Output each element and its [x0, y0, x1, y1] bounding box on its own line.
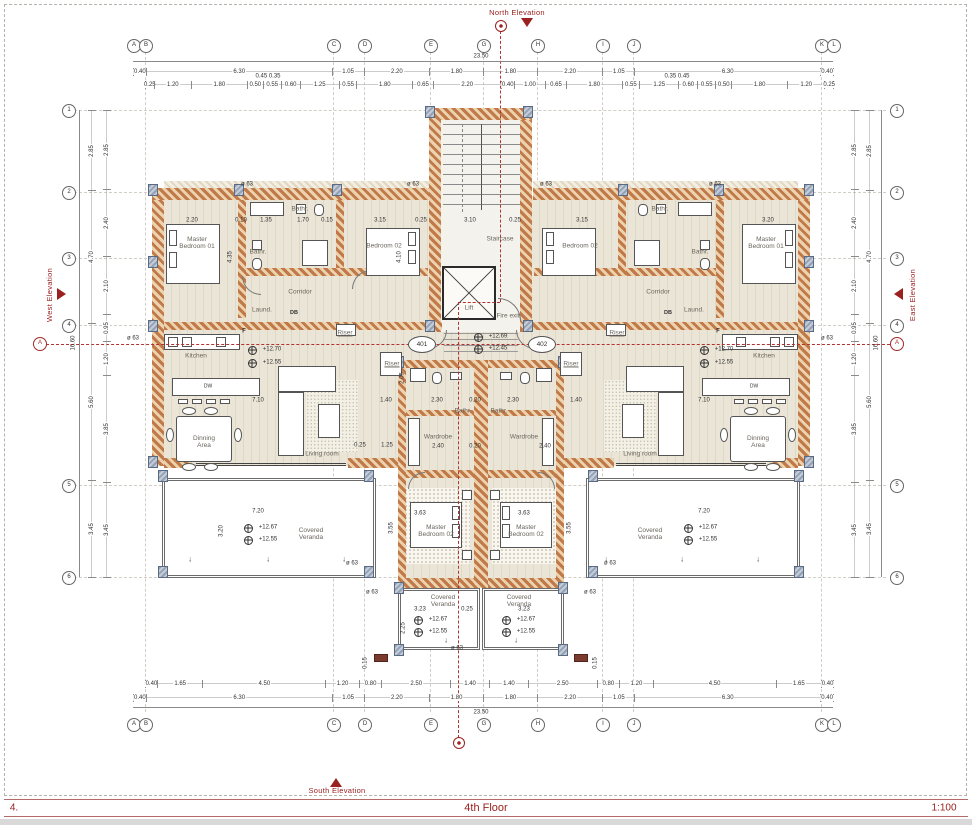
- dimension-segment: 4.70: [88, 190, 96, 322]
- dimension-segment: 1.05: [332, 68, 364, 76]
- dimension-label: 1.25: [381, 443, 393, 450]
- pillow: [785, 252, 793, 268]
- bathtub: [678, 202, 712, 216]
- column: [794, 470, 804, 482]
- dimension-label: 0.25: [509, 218, 521, 225]
- dimension-segment: 0.25: [145, 81, 154, 89]
- wall: [152, 200, 164, 466]
- level-marker-icon: [248, 346, 257, 355]
- column: [804, 456, 814, 468]
- column: [618, 184, 628, 196]
- dimension-segment: 1.05: [602, 68, 634, 76]
- dimension-segment: 2.85: [88, 110, 96, 190]
- dimension-segment: 3.85: [851, 375, 859, 481]
- grid-line: [821, 52, 822, 712]
- dimension-label: 4.35: [228, 251, 235, 263]
- dimension-segment: 1.05: [602, 694, 634, 702]
- kitchen-appliance: [770, 337, 780, 347]
- column: [158, 470, 168, 482]
- dimension-label: 3.10: [464, 218, 476, 225]
- chair: [766, 463, 780, 471]
- section-line-jog: [458, 302, 500, 303]
- column: [425, 106, 435, 118]
- dimension-segment: 0.40: [820, 694, 833, 702]
- f-label: F: [716, 329, 720, 336]
- wall: [398, 360, 406, 588]
- stair-center-line: [481, 124, 482, 210]
- drain-arrow-icon: ↓: [680, 556, 684, 565]
- stool: [734, 399, 744, 404]
- db-label: DB: [290, 310, 298, 316]
- level-value: +12.55: [517, 629, 536, 636]
- level-marker-icon: [684, 524, 693, 533]
- column: [394, 582, 404, 594]
- drain-label: ø 63: [366, 590, 378, 597]
- column: [794, 566, 804, 578]
- wall: [398, 578, 474, 588]
- column: [804, 320, 814, 332]
- room-label-bath-center-right: Bathr.: [491, 407, 508, 414]
- kitchen-appliance: [784, 337, 794, 347]
- page-title: 4th Floor: [464, 802, 507, 814]
- riser-label: Riser: [337, 329, 352, 336]
- grid-bubble-bottom: B: [139, 718, 153, 732]
- dimension-label: 2.40: [432, 444, 444, 451]
- west-arrow-icon: [57, 288, 66, 300]
- dimension-segment: 0.55: [697, 81, 715, 89]
- dimension-label: 1.70: [297, 218, 309, 225]
- bottom-dimension-row-major: 0.406.301.052.201.801.802.201.056.300.40: [133, 694, 834, 702]
- dimension-segment: 1.80: [429, 68, 483, 76]
- dimension-label: 0.45 0.35: [255, 74, 280, 81]
- column: [804, 184, 814, 196]
- stair-up-line: [462, 124, 463, 212]
- level-value: +12.69: [489, 334, 508, 341]
- grid-bubble-bottom: L: [827, 718, 841, 732]
- room-label-veranda-left: Covered Veranda: [290, 527, 332, 541]
- level-marker-icon: [414, 628, 423, 637]
- dimension-segment: 0.40: [133, 694, 146, 702]
- dimension-segment: 0.40: [133, 68, 146, 76]
- dimension-label: 0.15: [321, 218, 333, 225]
- grid-line: [145, 52, 146, 712]
- room-label-corridor-left: Corridor: [288, 288, 311, 295]
- chair: [744, 407, 758, 415]
- pillow: [546, 250, 554, 264]
- dimension-segment: 3.45: [866, 480, 874, 577]
- pillow: [169, 252, 177, 268]
- room-label-fire-exit: Fire exit: [496, 312, 519, 319]
- dimension-segment: 1.20: [325, 680, 358, 688]
- grid-bubble-top: D: [358, 39, 372, 53]
- dimension-segment: 1.80: [566, 81, 622, 89]
- column: [148, 184, 158, 196]
- dimension-segment: 1.65: [776, 680, 822, 688]
- room-label-master-bedroom-02-right: Master Bedroom 02: [503, 524, 549, 538]
- dimension-segment: 2.20: [364, 694, 430, 702]
- drain-arrow-icon: ↓: [756, 556, 760, 565]
- right-dimension-col-inner: 2.852.402.100.951.203.853.45: [851, 110, 859, 578]
- dimension-segment: 5.60: [88, 323, 96, 480]
- level-marker-icon: [244, 524, 253, 533]
- dimension-segment: 0.80: [359, 680, 382, 688]
- nightstand: [490, 550, 500, 560]
- column: [588, 566, 598, 578]
- wall: [798, 200, 810, 466]
- overall-dim-line-bottom: [133, 707, 833, 708]
- dimension-segment: 1.20: [103, 341, 111, 375]
- drain-arrow-icon: ↓: [188, 556, 192, 565]
- grid-bubble-bottom: G: [477, 718, 491, 732]
- drain-label: ø 63: [821, 336, 833, 343]
- west-elevation-label: West Elevation: [46, 268, 54, 322]
- dimension-segment: 2.50: [528, 680, 597, 688]
- dimension-segment: 1.20: [154, 81, 191, 89]
- section-marker-north: [495, 20, 507, 32]
- dimension-label: 2.30: [431, 398, 443, 405]
- north-arrow-icon: [521, 18, 533, 27]
- dimension-segment: 6.30: [146, 68, 332, 76]
- drain-arrow-icon: ↓: [514, 637, 518, 646]
- shower: [634, 240, 660, 266]
- drain-label: ø 63: [451, 646, 463, 653]
- shower: [410, 368, 426, 382]
- drain-label: ø 63: [540, 182, 552, 189]
- dimension-segment: 0.55: [339, 81, 357, 89]
- grid-bubble-bottom: E: [424, 718, 438, 732]
- shaft-block: [374, 654, 388, 662]
- grid-bubble-right: 1: [890, 104, 904, 118]
- riser-label: Riser: [609, 329, 624, 336]
- dimension-label: 4.10: [397, 251, 404, 263]
- wall: [488, 360, 556, 368]
- east-arrow-icon: [894, 288, 903, 300]
- sofa: [278, 392, 304, 456]
- dimension-segment: 2.20: [433, 81, 501, 89]
- nightstand: [490, 490, 500, 500]
- dimension-label: 0.10: [235, 218, 247, 225]
- level-value: +12.67: [429, 617, 448, 624]
- grid-bubble-bottom: J: [627, 718, 641, 732]
- dimension-segment: 3.45: [851, 482, 859, 577]
- pillow: [408, 232, 416, 246]
- level-marker-icon: [700, 359, 709, 368]
- bathtub: [250, 202, 284, 216]
- room-label-staircase: Staircase: [486, 235, 513, 242]
- sink: [500, 372, 512, 380]
- dimension-label: 0.25: [461, 607, 473, 614]
- room-label-master-bedroom-01-right: Master Bedroom 01: [744, 236, 788, 250]
- grid-bubble-bottom: H: [531, 718, 545, 732]
- pillow: [502, 506, 510, 520]
- drain-label: ø 63: [127, 336, 139, 343]
- dimension-label: 2.25: [401, 622, 408, 634]
- overall-height-left: 16.60: [71, 335, 78, 350]
- sink: [450, 372, 462, 380]
- level-value: +12.55: [715, 360, 734, 367]
- level-value: +12.67: [699, 525, 718, 532]
- shaft-block: [574, 654, 588, 662]
- level-value: +12.55: [429, 629, 448, 636]
- dimension-segment: 0.80: [597, 680, 620, 688]
- column: [804, 256, 814, 268]
- room-label-kitchen-left: Kitchen: [185, 352, 207, 359]
- sofa: [658, 392, 684, 456]
- column: [364, 470, 374, 482]
- grid-bubble-right: 4: [890, 319, 904, 333]
- dimension-label: 7.20: [698, 509, 710, 516]
- wall: [164, 322, 442, 330]
- titleblock-rule: [4, 799, 968, 800]
- dimension-label: 3.20: [219, 525, 226, 537]
- room-label-corridor-right: Corridor: [646, 288, 669, 295]
- column: [558, 582, 568, 594]
- top-dimension-row-detail: 0.251.201.800.500.550.601.250.551.800.65…: [145, 81, 834, 89]
- dimension-segment: 0.60: [281, 81, 300, 89]
- dimension-segment: 1.65: [157, 680, 203, 688]
- dimension-segment: 1.80: [731, 81, 787, 89]
- wall: [556, 360, 564, 588]
- grid-bubble-left: 6: [62, 571, 76, 585]
- wall: [429, 120, 441, 332]
- south-elevation-label: South Elevation: [308, 787, 365, 795]
- dimension-segment: 1.40: [489, 680, 528, 688]
- dimension-label: 2.20: [186, 218, 198, 225]
- room-label-laundry-left: Laund.: [252, 306, 272, 313]
- riser-label: Riser: [384, 360, 399, 367]
- dimension-label: 3.63: [414, 511, 426, 518]
- column: [364, 566, 374, 578]
- overall-height-right: 16.60: [874, 335, 881, 350]
- dimension-segment: 1.05: [332, 694, 364, 702]
- grid-bubble-top: I: [596, 39, 610, 53]
- dimension-label: 3.23: [518, 607, 530, 614]
- column: [158, 566, 168, 578]
- overall-dim-line-left: [79, 110, 80, 577]
- nightstand: [462, 490, 472, 500]
- grid-bubble-top: G: [477, 39, 491, 53]
- level-value: +12.67: [517, 617, 536, 624]
- dimension-label: 0.35 0.45: [664, 74, 689, 81]
- room-label-veranda-center-left: Covered Veranda: [422, 594, 464, 608]
- section-bubble-a-left: A: [33, 337, 47, 351]
- closet: [542, 418, 554, 466]
- overall-width-bottom: 23.50: [473, 710, 488, 717]
- drain-label: ø 63: [709, 182, 721, 189]
- chair: [204, 463, 218, 471]
- floor-plan-sheet: A A North Elevation South Elevation West…: [0, 0, 972, 825]
- room-label-bath: Bathr.: [292, 205, 309, 212]
- dimension-segment: 4.50: [653, 680, 776, 688]
- level-value: +12.55: [259, 537, 278, 544]
- dimension-segment: 1.80: [483, 694, 537, 702]
- room-label-dining-left: Dinning Area: [188, 435, 220, 449]
- toilet: [700, 258, 710, 270]
- stool: [762, 399, 772, 404]
- dimension-segment: 1.80: [356, 81, 412, 89]
- dimension-segment: 1.20: [619, 680, 652, 688]
- room-label-lift: Lift: [465, 304, 474, 311]
- dimension-segment: 2.20: [364, 68, 430, 76]
- dimension-segment: 3.85: [103, 375, 111, 481]
- level-value: +12.67: [259, 525, 278, 532]
- dimension-segment: 0.95: [851, 314, 859, 341]
- room-label-veranda-right: Covered Veranda: [629, 527, 671, 541]
- chair: [166, 428, 174, 442]
- grid-bubble-top: L: [827, 39, 841, 53]
- dimension-segment: 4.70: [866, 190, 874, 322]
- dimension-label: 0.15: [593, 657, 600, 669]
- dimension-segment: 2.40: [103, 189, 111, 256]
- column: [523, 106, 533, 118]
- dimension-segment: 0.65: [412, 81, 433, 89]
- grid-bubble-left: 3: [62, 252, 76, 266]
- dimension-label: 3.55: [567, 522, 574, 534]
- east-elevation-label: East Elevation: [909, 269, 917, 321]
- dimension-segment: 0.25: [824, 81, 833, 89]
- dimension-label: 7.10: [252, 398, 264, 405]
- dimension-segment: 0.40: [821, 680, 833, 688]
- shower: [536, 368, 552, 382]
- wall: [152, 188, 429, 200]
- dw-label: DW: [750, 384, 758, 390]
- drain-arrow-icon: ↓: [604, 556, 608, 565]
- level-marker-icon: [502, 616, 511, 625]
- grid-bubble-bottom: I: [596, 718, 610, 732]
- chair: [720, 428, 728, 442]
- dimension-segment: 3.45: [88, 480, 96, 577]
- dimension-label: 0.25: [354, 443, 366, 450]
- kitchen-appliance: [182, 337, 192, 347]
- chair: [182, 463, 196, 471]
- dimension-label: 1.40: [570, 398, 582, 405]
- dimension-label: 3.23: [414, 607, 426, 614]
- dimension-label: 1.40: [380, 398, 392, 405]
- level-value: +12.70: [263, 347, 282, 354]
- level-value: +12.55: [699, 537, 718, 544]
- level-value: +12.70: [715, 347, 734, 354]
- level-marker-icon: [414, 616, 423, 625]
- left-dimension-col-inner: 2.852.402.100.951.203.853.45: [103, 110, 111, 578]
- kitchen-appliance: [736, 337, 746, 347]
- kitchen-island: [172, 378, 260, 396]
- toilet: [314, 204, 324, 216]
- grid-bubble-bottom: D: [358, 718, 372, 732]
- party-wall: [474, 360, 488, 588]
- sofa: [626, 366, 684, 392]
- room-label-wardrobe-right: Wardrobe: [510, 433, 538, 440]
- column: [148, 256, 158, 268]
- dimension-label: 0.20: [469, 444, 481, 451]
- room-label-bedroom-02-right: Bedroom 02: [562, 242, 597, 249]
- dimension-segment: 6.30: [634, 68, 820, 76]
- south-arrow-icon: [330, 778, 342, 787]
- left-dimension-col-outer: 2.854.705.603.45: [88, 110, 96, 578]
- level-value: +12.45: [489, 346, 508, 353]
- bottom-dimension-row-detail: 0.401.654.501.200.802.501.401.402.500.80…: [145, 680, 834, 688]
- overall-dim-line-top: [133, 61, 833, 62]
- drain-arrow-icon: ↓: [444, 637, 448, 646]
- column: [148, 320, 158, 332]
- stool: [192, 399, 202, 404]
- level-marker-icon: [244, 536, 253, 545]
- titleblock-rule: [4, 816, 968, 817]
- coffee-table: [622, 404, 644, 438]
- dimension-label: 3.15: [374, 218, 386, 225]
- wall: [716, 200, 724, 318]
- window: [196, 463, 346, 466]
- level-marker-icon: [684, 536, 693, 545]
- kitchen-appliance: [216, 337, 226, 347]
- unit-number-401: 401: [408, 336, 436, 353]
- stool: [178, 399, 188, 404]
- db-label: DB: [664, 310, 672, 316]
- column: [148, 456, 158, 468]
- room-label-living-left: Living room: [305, 450, 339, 457]
- dimension-label: 0.15: [363, 657, 370, 669]
- dimension-segment: 1.80: [429, 694, 483, 702]
- grid-bubble-top: E: [424, 39, 438, 53]
- grid-bubble-top: J: [627, 39, 641, 53]
- room-label-bath: Bathr.: [250, 248, 267, 255]
- pillow: [408, 250, 416, 264]
- stool: [206, 399, 216, 404]
- chair: [766, 407, 780, 415]
- section-marker-south: [453, 737, 465, 749]
- wall: [348, 458, 398, 468]
- dimension-segment: 1.20: [787, 81, 824, 89]
- column: [558, 644, 568, 656]
- covered-veranda-right: [586, 478, 800, 578]
- dimension-label: 3.55: [389, 522, 396, 534]
- dimension-label: 1.35: [260, 218, 272, 225]
- room-label-laundry-right: Laund.: [684, 306, 704, 313]
- dimension-segment: 2.40: [851, 189, 859, 256]
- drain-label: ø 63: [407, 182, 419, 189]
- grid-bubble-right: 2: [890, 186, 904, 200]
- dimension-segment: 0.50: [247, 81, 263, 89]
- chair: [744, 463, 758, 471]
- dimension-segment: 0.55: [263, 81, 281, 89]
- lift-shaft: [442, 266, 496, 320]
- grid-bubble-right: 5: [890, 479, 904, 493]
- room-label-bath: Bathr.: [692, 248, 709, 255]
- kitchen-appliance: [168, 337, 178, 347]
- toilet: [520, 372, 530, 384]
- dimension-segment: 6.30: [634, 694, 820, 702]
- dimension-label: 7.20: [252, 509, 264, 516]
- dimension-segment: 0.65: [545, 81, 566, 89]
- room-label-dining-right: Dinning Area: [742, 435, 774, 449]
- wall: [429, 108, 532, 120]
- shower: [302, 240, 328, 266]
- dimension-label: 2.40: [539, 444, 551, 451]
- dimension-segment: 2.20: [537, 68, 603, 76]
- section-line-aa: [46, 344, 890, 345]
- dw-label: DW: [204, 384, 212, 390]
- stool: [776, 399, 786, 404]
- drain-arrow-icon: ↓: [342, 556, 346, 565]
- dimension-segment: 0.50: [715, 81, 731, 89]
- wall: [618, 200, 626, 276]
- unit-number-402: 402: [528, 336, 556, 353]
- dimension-label: 2.30: [507, 398, 519, 405]
- grid-bubble-bottom: C: [327, 718, 341, 732]
- level-marker-icon: [474, 333, 483, 342]
- room-label-kitchen-right: Kitchen: [753, 352, 775, 359]
- top-dimension-row-major: 0.406.301.052.201.801.802.201.056.300.40: [133, 68, 834, 76]
- overall-width-top: 23.50: [473, 54, 488, 61]
